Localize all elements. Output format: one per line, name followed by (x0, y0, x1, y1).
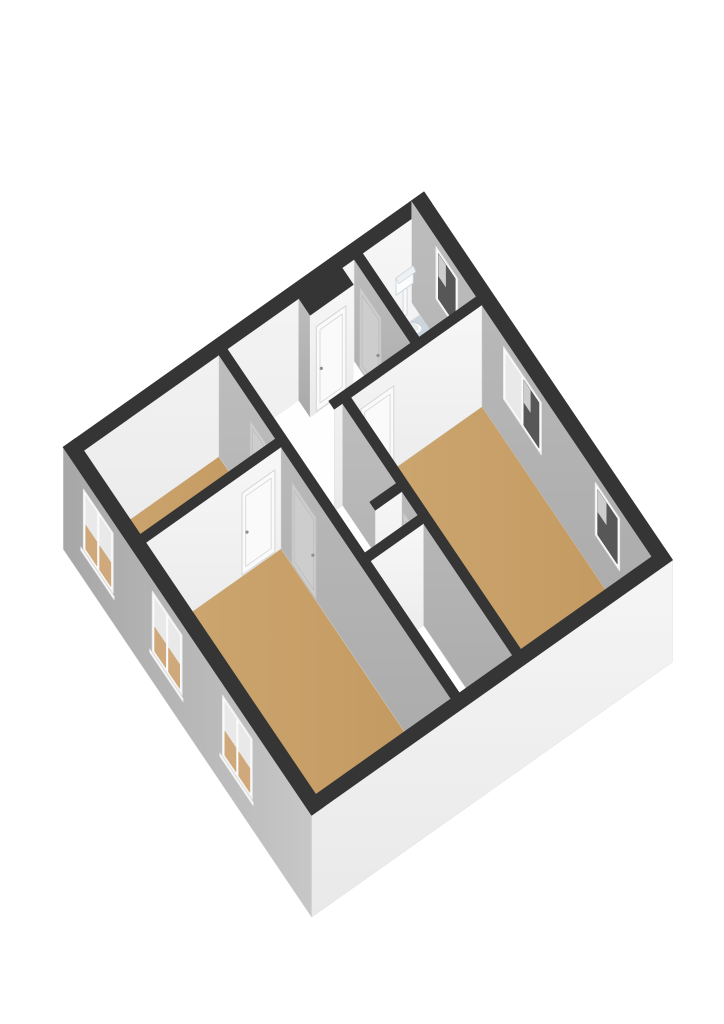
door-bedroom-left-handle (245, 531, 248, 534)
floor-plan-viewport (0, 0, 724, 1024)
door-bathroom-handle (376, 354, 379, 357)
floor-plan-3d (0, 0, 724, 1024)
entrance-recess-jamb (299, 298, 310, 417)
door-entrance-handle (320, 367, 323, 370)
door-living-room-handle (311, 554, 314, 557)
toilet-pipe (403, 288, 407, 318)
